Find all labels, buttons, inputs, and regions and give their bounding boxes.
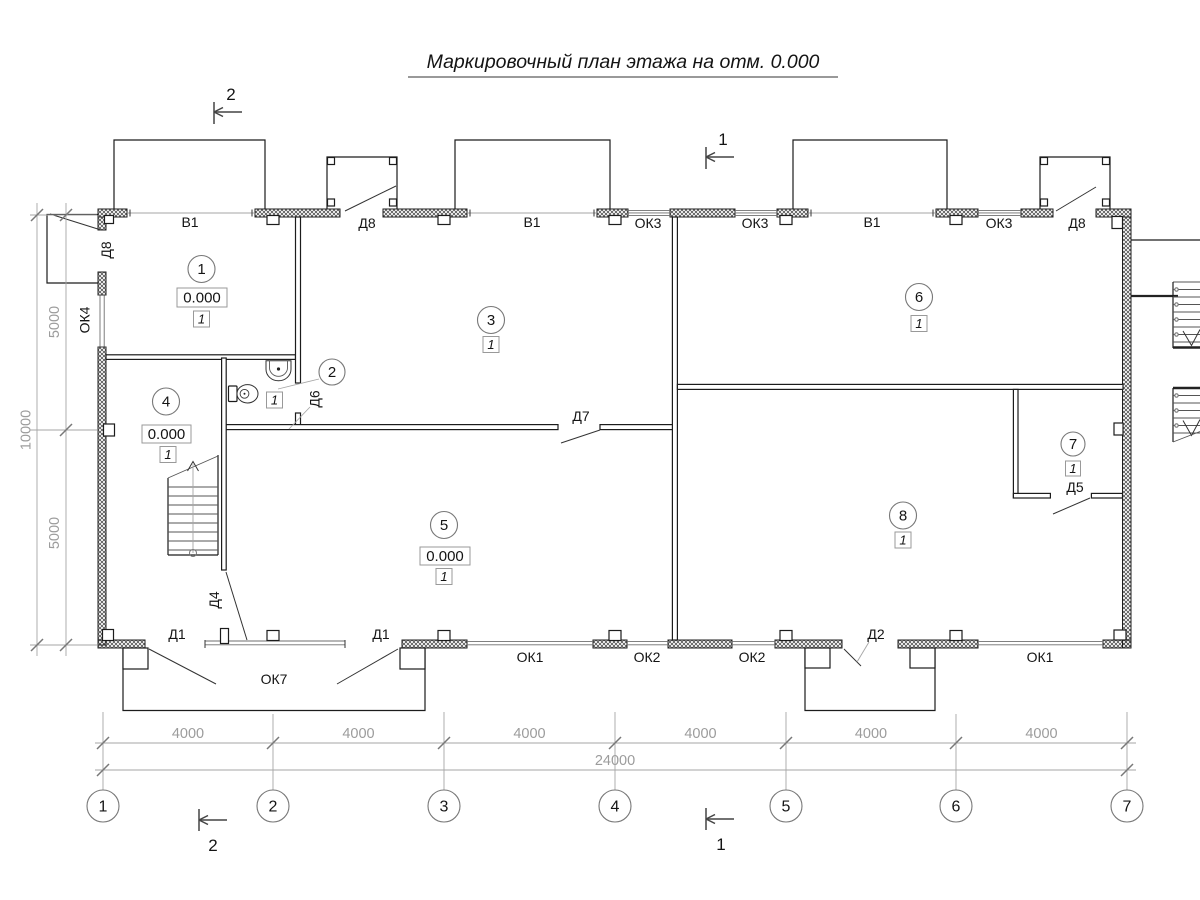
axis-1: 1 — [99, 799, 108, 816]
label-d4: Д4 — [206, 591, 222, 608]
section-mark-top-middle: 1 — [706, 130, 734, 169]
door-leaf-d1-right — [337, 649, 398, 684]
dim-bay-6: 4000 — [1025, 726, 1057, 742]
toilet — [229, 385, 259, 403]
label-top-v1-3: В1 — [863, 214, 880, 230]
axis-3: 3 — [440, 799, 449, 816]
label-bottom-ok2-2: ОК2 — [739, 649, 766, 665]
label-bottom-ok2-1: ОК2 — [634, 649, 661, 665]
internal-stair — [168, 455, 218, 557]
title-text: Маркировочный план этажа на отм. 0.000 — [427, 51, 820, 73]
room-markers: 1 0.000 1 2 1 3 1 4 0.000 1 — [142, 256, 1085, 585]
dim-bay-2: 4000 — [342, 726, 374, 742]
axis-5: 5 — [782, 799, 791, 816]
door-leaf-d4 — [226, 572, 247, 640]
canopy-left — [114, 140, 265, 209]
room-7-number: 7 — [1069, 436, 1077, 453]
floor-plan-svg: Маркировочный план этажа на отм. 0.000 — [0, 0, 1200, 900]
label-bottom-d1-2: Д1 — [372, 626, 389, 642]
door-leaf-d8-left — [50, 214, 101, 230]
label-top-ok3-2: ОК3 — [742, 215, 769, 231]
door-leaf-d7 — [561, 430, 600, 443]
axis-bubbles: 1 2 3 4 5 6 7 — [87, 790, 1143, 822]
section-label: 1 — [716, 835, 725, 854]
room-8-number: 8 — [899, 508, 907, 525]
label-top-d8-2: Д8 — [1068, 215, 1085, 231]
section-label: 1 — [718, 130, 727, 149]
room-8-marker: 8 1 — [890, 502, 917, 548]
section-marks: 2 1 2 1 — [199, 85, 734, 855]
door-leaf-d8-top2 — [1056, 187, 1096, 211]
room-3-type: 1 — [487, 337, 494, 352]
dim-left-lower: 5000 — [47, 517, 63, 549]
label-left-ok4: ОК4 — [77, 306, 93, 333]
door-leaf-d5 — [1053, 498, 1090, 514]
bottom-dimensions: 4000 4000 4000 4000 4000 4000 24000 — [95, 712, 1136, 790]
sink — [266, 361, 291, 381]
section-mark-top-left: 2 — [214, 85, 242, 124]
door-leaf-d1-left — [149, 649, 216, 684]
label-bottom-ok7: ОК7 — [261, 671, 288, 687]
label-d6: Д6 — [307, 390, 323, 407]
room-1-marker: 1 0.000 1 — [177, 256, 227, 328]
label-top-ok3-1: ОК3 — [635, 215, 662, 231]
dim-bay-1: 4000 — [172, 726, 204, 742]
label-d7: Д7 — [572, 408, 589, 424]
room-1-type: 1 — [198, 312, 205, 327]
entrance-porch-d8-top2 — [1040, 157, 1110, 209]
label-top-d8-1: Д8 — [358, 215, 375, 231]
section-label: 2 — [208, 836, 217, 855]
room-5-marker: 5 0.000 1 — [420, 512, 470, 585]
room-8-type: 1 — [899, 533, 906, 548]
axis-7: 7 — [1123, 799, 1132, 816]
porch-top-left — [47, 215, 98, 284]
dim-bay-3: 4000 — [513, 726, 545, 742]
room-7-marker: 7 1 — [1061, 432, 1085, 476]
stair-down-arrow-1 — [1183, 330, 1200, 346]
room-4-number: 4 — [162, 394, 170, 411]
left-dimensions: 5000 5000 10000 — [19, 203, 98, 656]
room-4-type: 1 — [164, 447, 171, 462]
label-bottom-d2: Д2 — [867, 626, 884, 642]
dim-total: 24000 — [595, 753, 635, 769]
room-2-number: 2 — [328, 364, 336, 381]
section-label: 2 — [226, 85, 235, 104]
window-ok4 — [98, 295, 106, 347]
label-bottom-ok1-1: ОК1 — [517, 649, 544, 665]
canopy-right — [793, 140, 947, 209]
door-leaf-d2 — [844, 649, 861, 666]
axis-6: 6 — [952, 799, 961, 816]
opening-labels: В1 Д8 В1 ОК3 ОК3 В1 ОК3 Д8 Д1 ОК7 Д1 ОК1… — [77, 214, 1086, 687]
label-d5: Д5 — [1066, 479, 1083, 495]
drawing-sheet: Маркировочный план этажа на отм. 0.000 — [0, 0, 1200, 900]
section-mark-bottom-left: 2 — [199, 809, 227, 855]
window-ok1-2 — [978, 641, 1103, 644]
room-7-type: 1 — [1069, 461, 1076, 476]
room-6-type: 1 — [915, 316, 922, 331]
label-top-v1-2: В1 — [523, 214, 540, 230]
axis-4: 4 — [611, 799, 620, 816]
label-bottom-ok1-2: ОК1 — [1027, 649, 1054, 665]
axis-2: 2 — [269, 799, 278, 816]
section-mark-bottom-middle: 1 — [706, 808, 734, 854]
dim-left-upper: 5000 — [47, 306, 63, 338]
room-4-elevation: 0.000 — [148, 426, 186, 443]
window-ok2-1 — [627, 641, 668, 644]
room-2-type: 1 — [271, 393, 278, 408]
room-1-elevation: 0.000 — [183, 290, 221, 307]
entrance-porch-d8-top1 — [327, 157, 397, 209]
room-6-number: 6 — [915, 289, 923, 306]
room-5-type: 1 — [440, 569, 447, 584]
door-leaf-d8-top1 — [345, 186, 396, 211]
dim-bay-4: 4000 — [684, 726, 716, 742]
interior-partitions — [106, 217, 1123, 644]
room-3-number: 3 — [487, 312, 495, 329]
room-5-number: 5 — [440, 517, 448, 534]
canopy-middle — [455, 140, 610, 209]
drawing-title: Маркировочный план этажа на отм. 0.000 — [408, 51, 838, 77]
window-ok1-1 — [467, 641, 593, 644]
leader-d2 — [857, 642, 869, 662]
room-3-marker: 3 1 — [478, 307, 505, 353]
dim-left-total: 10000 — [19, 410, 35, 450]
room-5-elevation: 0.000 — [426, 548, 464, 565]
label-bottom-d1-1: Д1 — [168, 626, 185, 642]
label-left-d8: Д8 — [98, 241, 114, 258]
room-1-number: 1 — [197, 261, 205, 278]
dim-bay-5: 4000 — [855, 726, 887, 742]
label-top-ok3-3: ОК3 — [986, 215, 1013, 231]
room-4-marker: 4 0.000 1 — [142, 388, 191, 463]
external-stair — [1131, 240, 1200, 442]
label-top-v1-1: В1 — [181, 214, 198, 230]
room-6-marker: 6 1 — [906, 284, 933, 332]
window-ok2-2 — [732, 641, 775, 644]
